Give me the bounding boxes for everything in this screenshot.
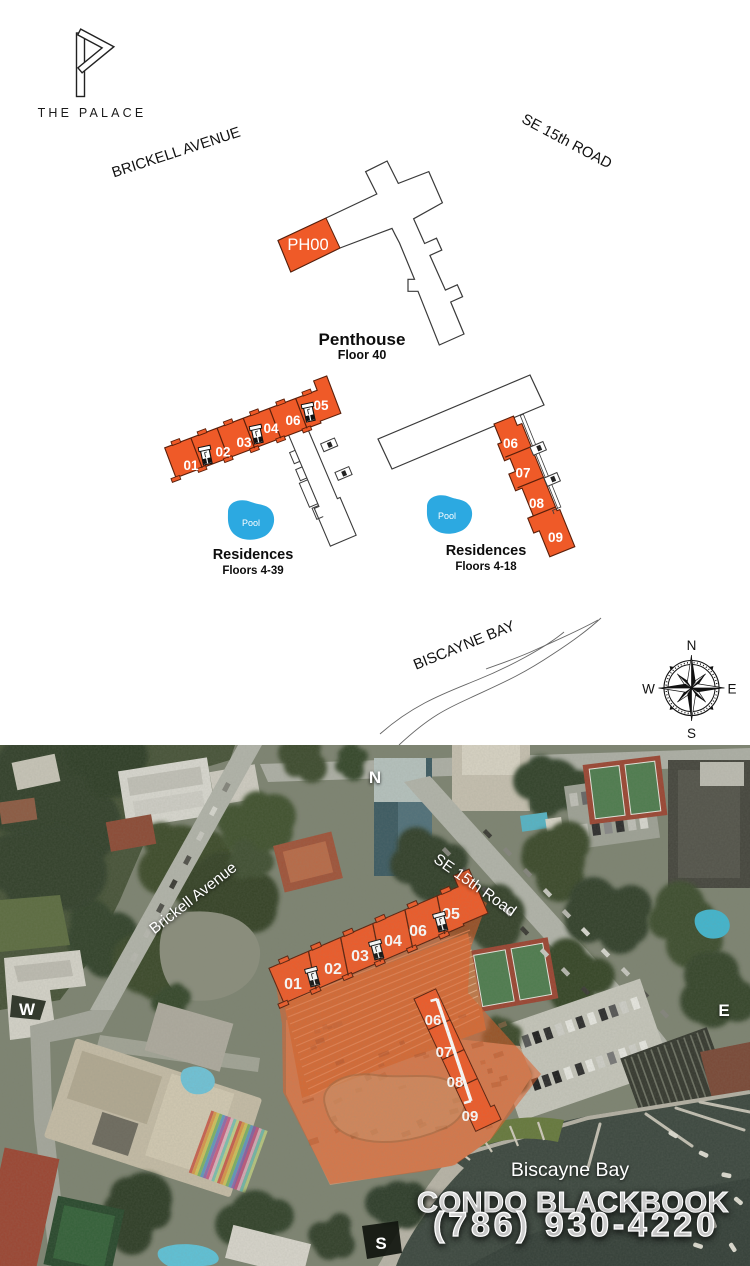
svg-text:05: 05 <box>313 398 329 413</box>
svg-text:N: N <box>687 638 697 653</box>
svg-text:Pool: Pool <box>438 511 456 521</box>
svg-text:S: S <box>375 1234 386 1253</box>
svg-text:S: S <box>687 726 696 741</box>
svg-text:(786) 930-4220: (786) 930-4220 <box>433 1206 719 1244</box>
svg-text:Floors 4-39: Floors 4-39 <box>222 565 283 577</box>
svg-text:04: 04 <box>263 421 279 436</box>
svg-text:Floor 40: Floor 40 <box>338 348 387 362</box>
svg-text:Biscayne Bay: Biscayne Bay <box>511 1159 629 1181</box>
svg-text:E: E <box>718 1001 729 1020</box>
svg-text:08: 08 <box>529 496 545 511</box>
svg-text:Floors 4-18: Floors 4-18 <box>455 561 517 573</box>
svg-text:06: 06 <box>285 413 301 428</box>
svg-text:THE PALACE: THE PALACE <box>38 106 147 120</box>
svg-text:PH00: PH00 <box>287 236 328 254</box>
svg-text:09: 09 <box>548 530 563 545</box>
svg-text:07: 07 <box>515 466 530 481</box>
svg-text:Penthouse: Penthouse <box>319 330 406 349</box>
svg-text:03: 03 <box>236 435 252 450</box>
svg-text:N: N <box>369 768 381 787</box>
svg-text:01: 01 <box>183 458 199 473</box>
svg-text:W: W <box>19 1000 36 1019</box>
svg-text:W: W <box>642 682 655 697</box>
svg-text:02: 02 <box>215 445 230 460</box>
svg-text:E: E <box>727 682 736 697</box>
svg-text:Residences: Residences <box>213 547 294 563</box>
svg-text:06: 06 <box>503 436 519 451</box>
svg-text:Residences: Residences <box>446 543 527 559</box>
svg-text:Pool: Pool <box>242 518 260 528</box>
